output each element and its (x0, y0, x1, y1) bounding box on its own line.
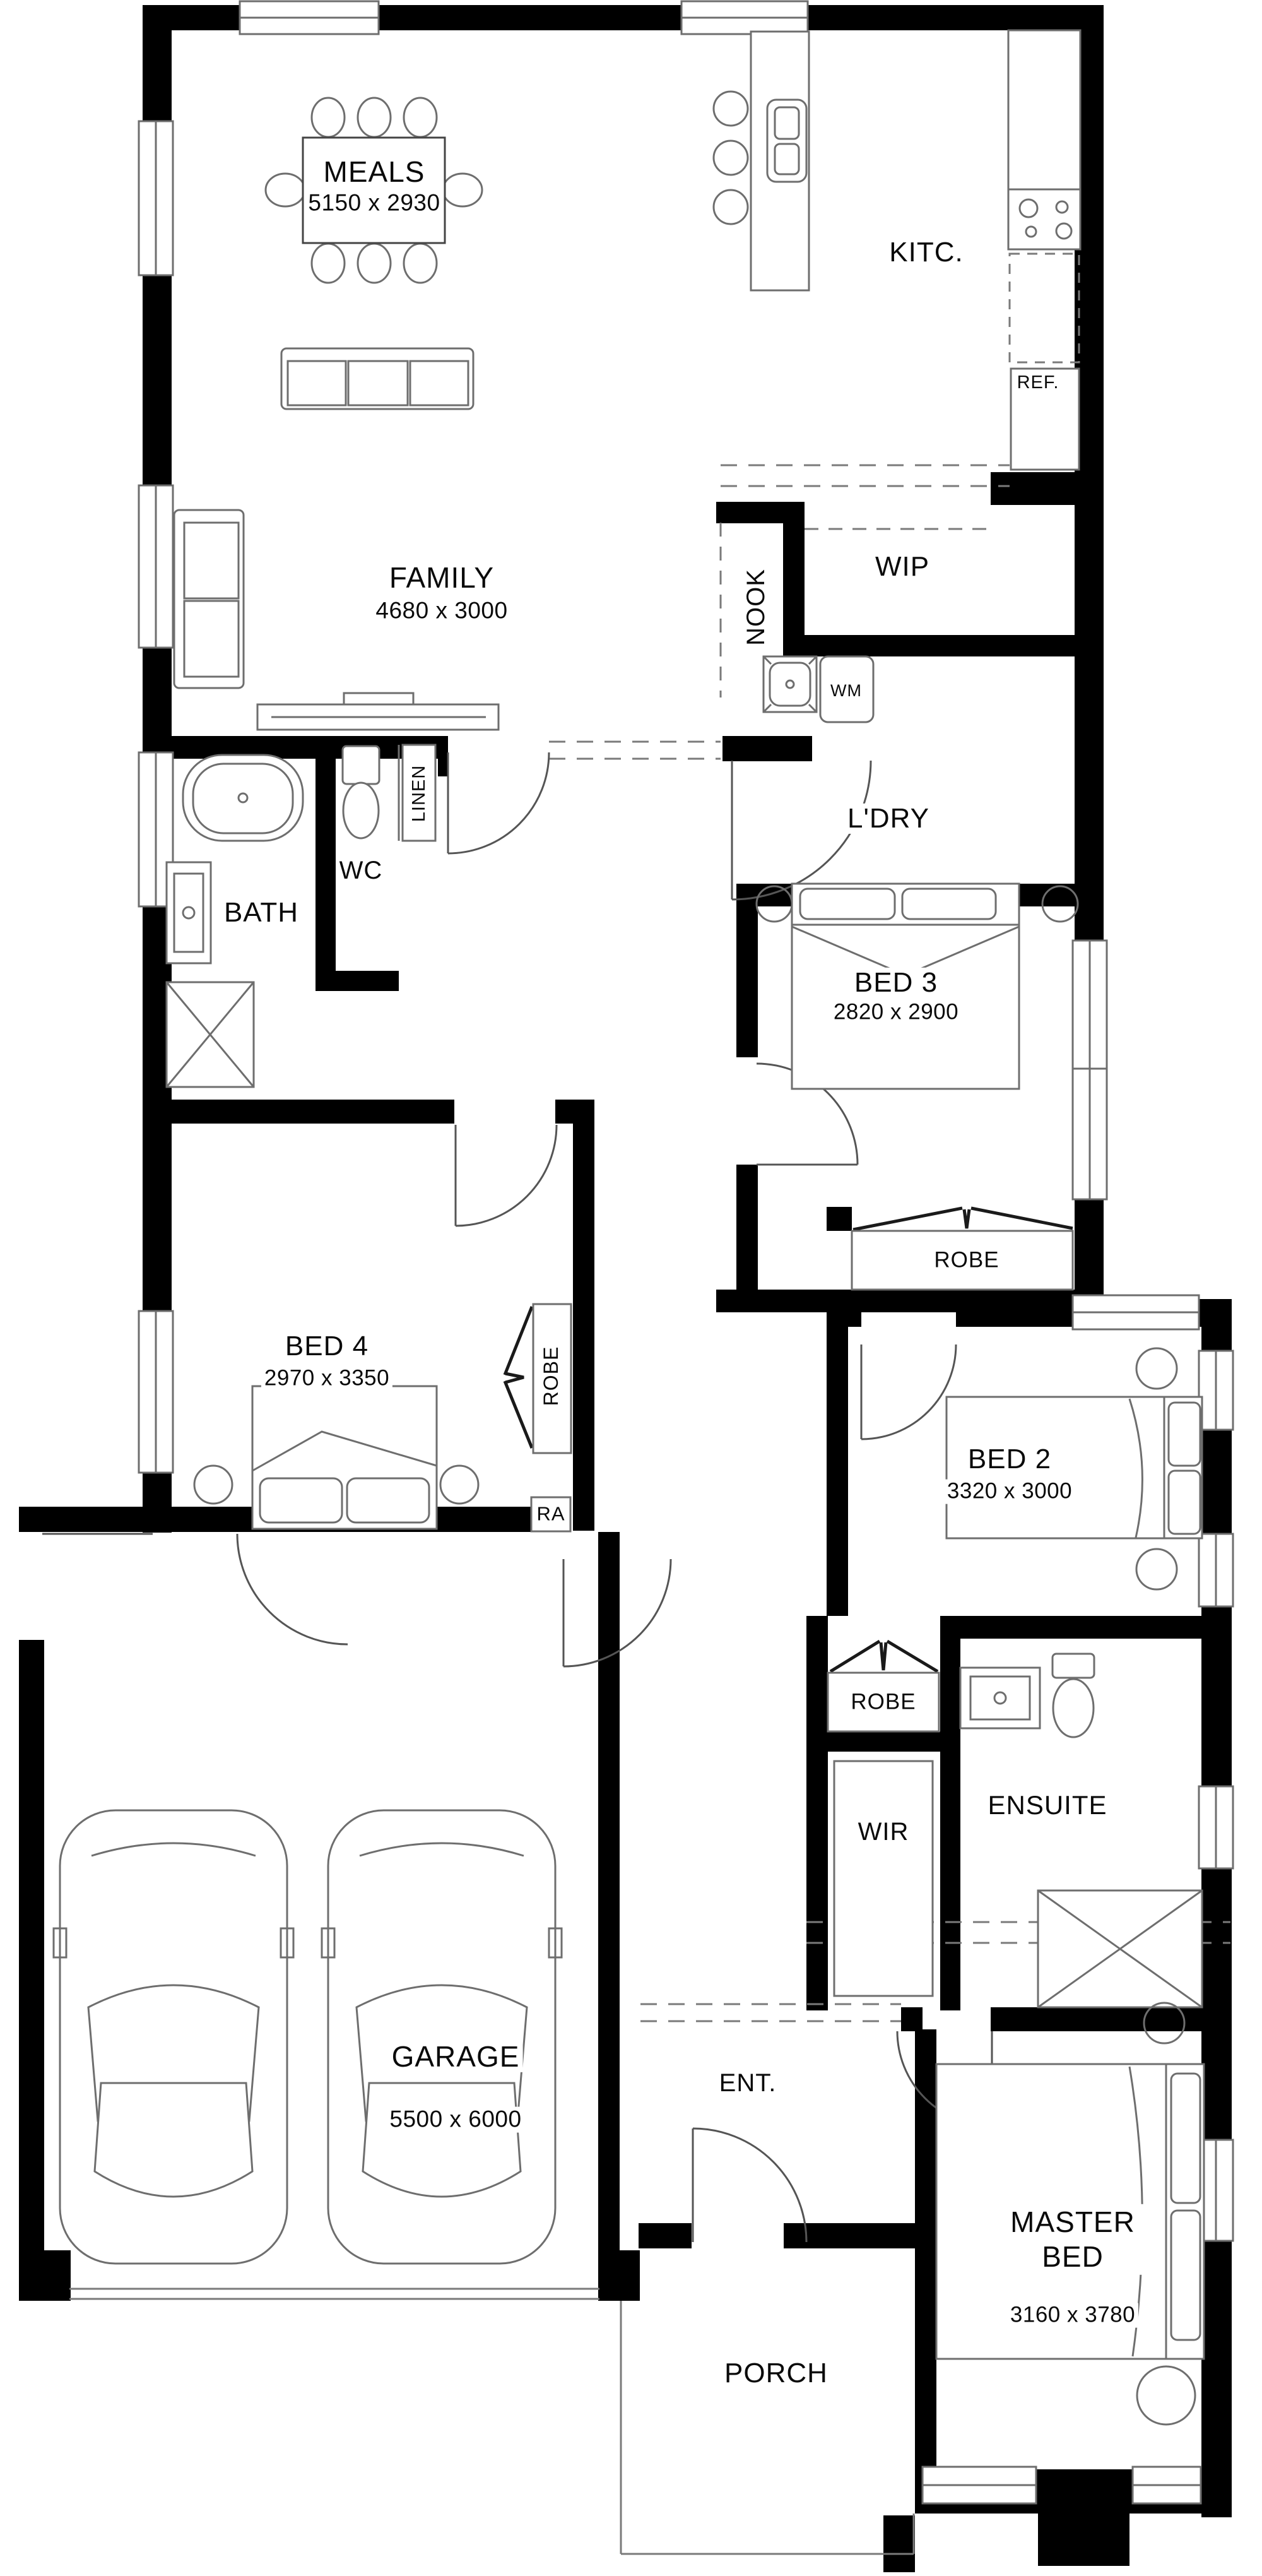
room-dims-master: 3160 x 3780 (1007, 2303, 1138, 2328)
label-washing-machine: WM (829, 682, 863, 699)
car-icon (54, 1810, 293, 2264)
kitchen-bench-icon (1008, 30, 1080, 189)
room-label-robe-bed2: ROBE (847, 1690, 919, 1715)
dashed-line (549, 254, 1230, 2021)
sofa-icon (174, 348, 473, 688)
floor-plan-drawing (0, 0, 1262, 2576)
cooktop-icon (1008, 189, 1080, 249)
room-label-wip: WIP (872, 552, 933, 582)
car-icon (322, 1810, 562, 2264)
laundry-trough-icon (764, 656, 817, 712)
room-dims-bed2: 3320 x 3000 (944, 1480, 1075, 1504)
room-label-meals: MEALS (321, 156, 428, 187)
room-label-entry: ENT. (716, 2069, 780, 2097)
room-label-linen: LINEN (409, 762, 429, 825)
vanity-icon (167, 862, 211, 963)
room-label-wc: WC (336, 857, 386, 884)
porch-outline (69, 2289, 914, 2554)
wir-shelf (834, 1761, 933, 1996)
tv-unit-icon (257, 693, 498, 730)
bed-icon (252, 1386, 437, 1529)
room-dims-meals: 5150 x 2930 (305, 191, 443, 217)
toilet-icon (343, 746, 379, 838)
bathtub-icon (183, 755, 303, 841)
room-dims-bed4: 2970 x 3350 (261, 1367, 392, 1391)
room-label-laundry: L'DRY (844, 804, 933, 834)
vanity-icon (960, 1668, 1040, 1728)
floor-plan: MEALS 5150 x 2930 KITC. REF. FAMILY 4680… (0, 0, 1262, 2576)
room-label-kitchen: KITC. (886, 237, 966, 268)
room-label-garage: GARAGE (389, 2041, 523, 2072)
room-label-bed4: BED 4 (282, 1331, 372, 1362)
room-label-bath: BATH (221, 898, 302, 928)
island-bench-icon (751, 32, 809, 290)
room-label-bed3: BED 3 (851, 968, 941, 998)
room-label-robe-bed4: ROBE (540, 1343, 563, 1410)
room-label-wir: WIR (855, 1818, 912, 1846)
room-label-robe-bed3: ROBE (931, 1249, 1002, 1273)
room-label-master: MASTER BED (1002, 2204, 1144, 2275)
label-return-air: RA (535, 1504, 566, 1525)
shower-icon (167, 982, 254, 1087)
room-dims-garage: 5500 x 6000 (386, 2107, 524, 2133)
room-label-porch: PORCH (721, 2358, 831, 2389)
toilet-icon (1053, 1654, 1094, 1737)
shower-icon (1038, 1890, 1202, 2007)
room-label-nook: NOOK (742, 566, 770, 649)
room-label-ref: REF. (1016, 373, 1061, 392)
room-label-family: FAMILY (386, 562, 497, 593)
room-dims-bed3: 2820 x 2900 (830, 1000, 962, 1025)
stool-icon (714, 92, 748, 224)
room-dims-family: 4680 x 3000 (372, 598, 510, 624)
room-label-ensuite: ENSUITE (984, 1791, 1110, 1820)
room-label-bed2: BED 2 (965, 1444, 1054, 1475)
